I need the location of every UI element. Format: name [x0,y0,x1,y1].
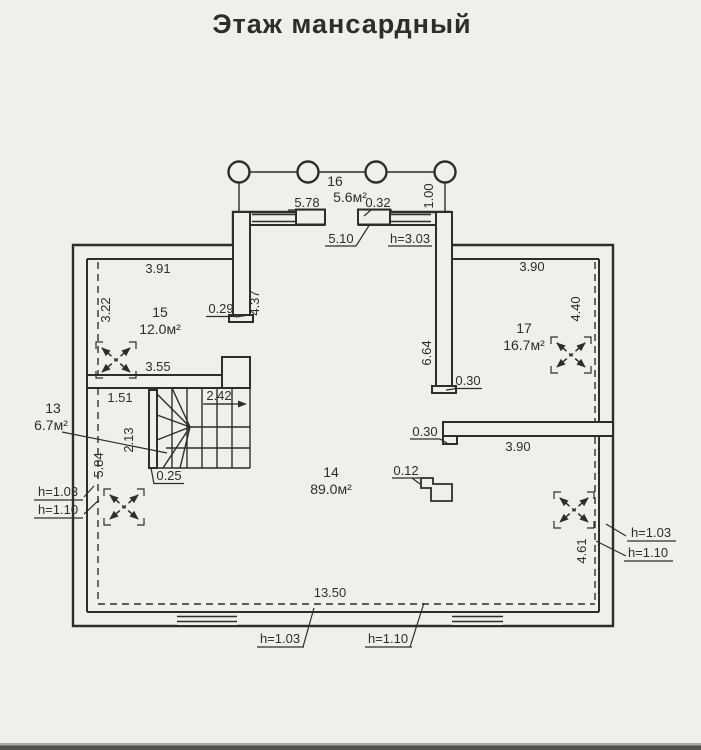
scan-edge-artifact [0,743,701,750]
dim-3-22: 3.22 [98,297,113,322]
slope-direction-symbol [551,337,591,373]
dim-4-40: 4.40 [568,296,583,321]
room-14-number: 14 [323,464,339,480]
room-14-area: 89.0м² [310,481,352,497]
dim-4-37: 4.37 [247,290,262,315]
window-pier [358,210,390,225]
window [452,614,503,626]
slope-direction-symbol [104,489,144,525]
height-right-1-03: h=1.03 [631,525,671,540]
dim-0-32: 0.32 [365,195,390,210]
staircase [157,388,250,468]
room-15-number: 15 [152,304,168,320]
scanned-floor-plan-page: Этаж мансардный [0,0,701,750]
floor-plan-canvas: Этаж мансардный [0,0,701,750]
dim-5-78: 5.78 [294,195,319,210]
chimney-block [421,478,452,501]
column-icon [366,162,387,183]
column-icon [435,162,456,183]
dim-3-90-top: 3.90 [519,259,544,274]
dim-0-30-room14-wall: 0.30 [412,424,437,439]
room-17-number: 17 [516,320,532,336]
height-left-1-03: h=1.03 [38,484,78,499]
dim-13-50: 13.50 [314,585,347,600]
height-bottom-1-10: h=1.10 [368,631,408,646]
height-right-1-10: h=1.10 [628,545,668,560]
column-icon [229,162,250,183]
dim-3-90-bottom: 3.90 [505,439,530,454]
room-13-number: 13 [45,400,61,416]
page-title: Этаж мансардный [212,9,471,39]
room-17-area: 16.7м² [503,337,545,353]
height-bottom-1-03: h=1.03 [260,631,300,646]
room-16-area: 5.6м² [333,189,367,205]
dim-5-10: 5.10 [328,231,353,246]
dim-3-55: 3.55 [145,359,170,374]
stair-direction-arrow-icon [238,401,247,408]
dim-0-30-room17-wall: 0.30 [455,373,480,388]
height-notes: h=1.03 h=1.10 h=1.03 h=1.10 h=1.03 h=1.1… [38,484,671,646]
room-15-area: 12.0м² [139,321,181,337]
window [177,614,237,626]
dim-1-51: 1.51 [107,390,132,405]
dim-6-64: 6.64 [419,340,434,365]
room-16-number: 16 [327,173,343,189]
height-left-1-10: h=1.10 [38,502,78,517]
dim-4-61: 4.61 [574,538,589,563]
dim-3-91: 3.91 [145,261,170,276]
room-13-area: 6.7м² [34,417,68,433]
bottom-windows [177,614,503,626]
window-pier [296,210,325,225]
dim-2-42: 2.42 [206,388,231,403]
height-3-03: h=3.03 [390,231,430,246]
dim-0-12: 0.12 [393,463,418,478]
slope-direction-symbol [96,342,136,378]
dim-0-29: 0.29 [208,301,233,316]
dim-0-25: 0.25 [156,468,181,483]
dim-2-13: 2.13 [121,427,136,452]
dim-1-00: 1.00 [421,183,436,208]
dim-5-84: 5.84 [91,452,106,477]
column-icon [298,162,319,183]
slope-direction-symbol [554,492,594,528]
